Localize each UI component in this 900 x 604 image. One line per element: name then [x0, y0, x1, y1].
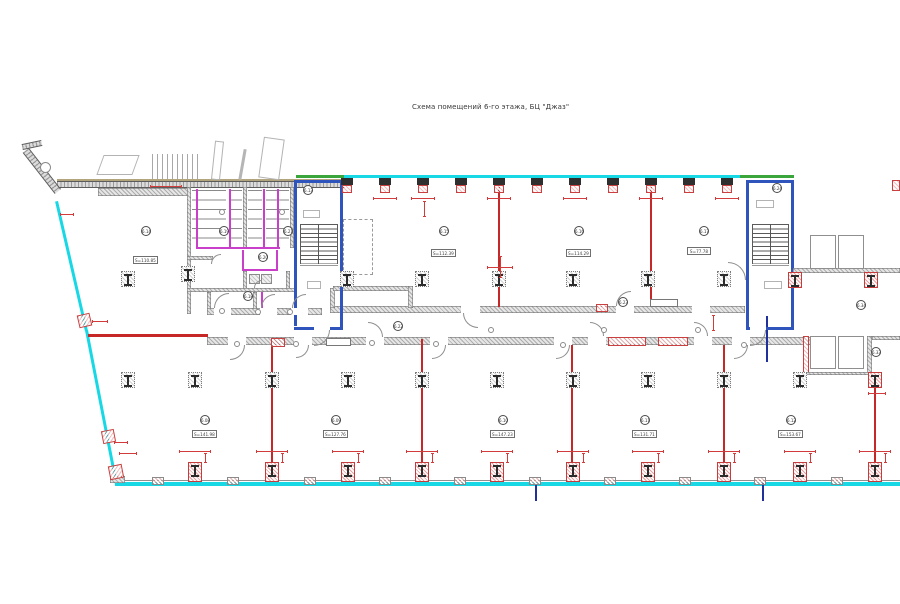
facade-column	[607, 178, 619, 185]
facade-column	[341, 178, 353, 185]
toilet-stalls	[231, 190, 242, 247]
facade-column-hatch	[380, 185, 390, 193]
sanitary-wall	[187, 288, 297, 292]
corridor-jog-wall	[408, 286, 413, 308]
door-tag-circle	[601, 327, 607, 333]
door-tag-circle	[741, 342, 747, 348]
wing-inner-wall	[98, 188, 190, 196]
dimension-mark	[411, 197, 435, 200]
elevator-shaft	[810, 235, 836, 269]
steel-column	[566, 271, 580, 287]
corridor-wall-new-left	[88, 334, 208, 337]
wall-niche-box	[307, 281, 321, 289]
facade-column-hatch	[456, 185, 466, 193]
section-marker	[762, 483, 764, 501]
door-tag-circle	[488, 327, 494, 333]
stairwell1-wall	[294, 180, 343, 183]
room-number-circle: 6.33	[871, 347, 881, 357]
facade-column	[645, 178, 657, 185]
steel-column-new	[868, 372, 882, 388]
room-number-circle: 6.17	[699, 226, 709, 236]
section-line	[766, 316, 768, 362]
facade-column	[265, 462, 279, 482]
room-number-circle: 6.12	[786, 415, 796, 425]
dimension-mark	[506, 453, 509, 463]
facade-column	[493, 178, 505, 185]
facade-column	[379, 178, 391, 185]
facade-column-mark	[77, 313, 93, 329]
window-band-right	[740, 175, 794, 178]
room-area-box: S=114.29	[566, 249, 591, 257]
facade-column	[717, 462, 731, 482]
new-opening-infill	[658, 337, 688, 346]
door-swing-arc	[432, 345, 446, 359]
section-marker	[535, 483, 537, 501]
sanitary-wall	[243, 187, 247, 248]
room-area-box: S=110.85	[133, 256, 158, 264]
dimension-mark	[884, 453, 887, 463]
plumbing-partition	[276, 250, 278, 270]
dimension-mark	[92, 320, 108, 323]
facade-column-hatch	[494, 185, 504, 193]
plumbing-partition	[242, 269, 278, 271]
door-opening	[692, 306, 710, 313]
steel-column	[641, 372, 655, 388]
dimension-mark	[868, 392, 886, 395]
door-swing-arc	[214, 293, 229, 308]
new-partition	[421, 339, 423, 482]
dimension-mark	[114, 441, 128, 444]
new-partition	[650, 187, 652, 307]
dimension-mark	[657, 453, 660, 463]
room-number-circle: 6.19	[219, 226, 229, 236]
facade-column-hatch	[342, 185, 352, 193]
grid-tick	[679, 477, 691, 485]
facade-column	[490, 462, 504, 482]
dimension-mark	[563, 197, 587, 200]
door-tag-circle	[695, 327, 701, 333]
door-tag-circle	[219, 308, 225, 314]
stair-stringer	[318, 224, 319, 264]
dimension-mark	[712, 315, 715, 331]
wall-fragment	[258, 137, 285, 181]
room-area-box: S=127.76	[323, 430, 348, 438]
sanitary-wall	[207, 292, 211, 309]
dimension-mark	[487, 197, 511, 200]
facade-column-mark	[108, 464, 124, 480]
room-number-circle: 6.08	[200, 415, 210, 425]
steel-column	[490, 372, 504, 388]
facade-column	[566, 462, 580, 482]
grid-tick	[379, 477, 391, 485]
stair-landing-box	[756, 200, 774, 208]
corridor-jog-wall	[330, 288, 335, 308]
stair-landing-box	[303, 210, 320, 218]
steel-column	[188, 372, 202, 388]
axis-marker-circle	[40, 162, 51, 173]
facade-column-hatch	[418, 185, 428, 193]
elevator-bottom-wall	[806, 372, 870, 375]
room-number-circle: 6.20	[258, 252, 268, 262]
room-area-box: S=112.39	[431, 249, 456, 257]
door-tag-circle	[255, 309, 261, 315]
room-area-box: S=147.23	[490, 430, 515, 438]
corridor-niche	[650, 299, 678, 307]
door-opening	[694, 337, 712, 345]
grid-tick	[227, 477, 239, 485]
door-tag-circle	[219, 209, 225, 215]
door-tag-circle	[234, 341, 240, 347]
window-band-left	[296, 175, 344, 178]
sanitary-wall	[253, 292, 257, 309]
grid-tick	[454, 477, 466, 485]
plumbing-partition	[196, 189, 198, 249]
facade-column-mark	[892, 180, 900, 191]
room-number-circle: 6.15	[439, 226, 449, 236]
steel-column	[340, 271, 354, 287]
wing-corner-cap	[22, 140, 43, 150]
demolished-wall-fragment	[96, 155, 139, 175]
steel-column	[341, 372, 355, 388]
sanitary-wall	[243, 271, 247, 289]
facade-column	[531, 178, 543, 185]
facade-column	[417, 178, 429, 185]
steel-column	[415, 372, 429, 388]
west-diagonal-wall-upper	[55, 201, 88, 331]
sanitary-wall	[286, 271, 290, 289]
plumbing-partition	[229, 189, 231, 249]
facade-column	[341, 462, 355, 482]
room-number-circle: 6.10	[498, 415, 508, 425]
stair-stringer	[770, 224, 771, 264]
grid-tick	[529, 477, 541, 485]
steel-column	[793, 372, 807, 388]
steel-column	[265, 372, 279, 388]
corridor-number-circle: 6.23	[618, 297, 628, 307]
facade-column-hatch	[532, 185, 542, 193]
dimension-mark	[715, 197, 739, 200]
dimension-mark	[60, 213, 74, 216]
door-tag-circle	[293, 341, 299, 347]
stairwell-number-circle: 6.13	[303, 185, 313, 195]
door-swing-arc	[368, 322, 383, 337]
elevator-side-wall	[803, 336, 809, 373]
room-area-box: S=153.67	[778, 430, 803, 438]
door-tag-circle	[560, 342, 566, 348]
plumbing-partition	[242, 250, 244, 270]
door-opening	[260, 308, 277, 315]
page-title: Схема помещений 6-го этажа, БЦ "Джаз"	[412, 103, 569, 111]
dimension-mark	[357, 453, 360, 463]
new-partition	[498, 187, 500, 307]
facade-column	[641, 462, 655, 482]
corridor-number-circle: 6.22	[393, 321, 403, 331]
plumbing-partition	[263, 189, 265, 249]
facade-column	[721, 178, 733, 185]
door-tag-circle	[279, 209, 285, 215]
sanitary-wall	[187, 187, 191, 314]
plumbing-partition	[277, 189, 279, 249]
toilet-stalls	[248, 190, 262, 247]
plumbing-partition	[196, 247, 280, 249]
stairwell2-wall	[746, 180, 749, 330]
facade-column	[455, 178, 467, 185]
facade-column	[868, 462, 882, 482]
west-diagonal-wall-lower	[85, 330, 118, 485]
stairwell1-stairs	[300, 224, 338, 264]
corridor-wall-right-end	[872, 336, 900, 340]
door-tag-circle	[287, 309, 293, 315]
corridor-north-wall-right	[330, 306, 745, 313]
door-tag-circle	[433, 341, 439, 347]
facade-column-hatch	[570, 185, 580, 193]
sink-fixture	[261, 274, 272, 284]
new-fixture-box	[271, 338, 285, 347]
steel-column	[121, 372, 135, 388]
facade-column-hatch	[722, 185, 732, 193]
steel-column-new	[788, 272, 802, 288]
room-number-circle: 6.18	[243, 291, 253, 301]
sanitary-wall	[187, 256, 213, 260]
steel-column-new	[864, 272, 878, 288]
room-area-box: S=141.98	[192, 430, 217, 438]
room-number-circle: 6.34	[856, 300, 866, 310]
room-number-circle: 6.09	[331, 415, 341, 425]
steel-column	[566, 372, 580, 388]
dimension-mark	[150, 185, 182, 188]
door-swing-arc	[463, 313, 478, 328]
stair-landing-line	[300, 265, 338, 266]
steel-column	[641, 271, 655, 287]
grid-tick	[152, 477, 164, 485]
dimension-mark	[281, 453, 284, 463]
stair-landing-line	[752, 265, 789, 266]
grid-tick	[304, 477, 316, 485]
corridor-niche	[326, 338, 351, 346]
grid-tick	[754, 477, 766, 485]
door-opening	[461, 306, 480, 313]
door-swing-arc	[296, 345, 309, 358]
floor-plan-canvas: Схема помещений 6-го этажа, БЦ "Джаз"	[0, 0, 900, 604]
elevator-shaft	[838, 235, 864, 269]
door-opening	[291, 308, 308, 315]
grid-tick	[831, 477, 843, 485]
wall-fragment	[211, 141, 224, 181]
dimension-mark	[582, 453, 585, 463]
room-area-box: S=77.78	[687, 247, 711, 255]
hatched-wall-fragment	[152, 154, 198, 179]
door-swing-arc	[230, 345, 245, 360]
dimension-mark	[119, 452, 137, 455]
steel-column	[181, 266, 195, 282]
dimension-mark	[499, 256, 502, 278]
door-tag-circle	[369, 340, 375, 346]
dimension-mark	[809, 453, 812, 463]
facade-column	[569, 178, 581, 185]
room-number-circle: 6.16	[574, 226, 584, 236]
dimension-mark	[373, 197, 397, 200]
facade-column-hatch	[646, 185, 656, 193]
stairwell2-wall	[746, 180, 794, 183]
steel-column	[717, 372, 731, 388]
facade-column-hatch	[684, 185, 694, 193]
steel-column	[121, 271, 135, 287]
door-swing-arc	[728, 262, 746, 280]
facade-column	[415, 462, 429, 482]
facade-column	[793, 462, 807, 482]
room-area-box: S=131.71	[632, 430, 657, 438]
door-opening	[588, 337, 606, 345]
door-opening	[616, 306, 634, 313]
grid-tick	[604, 477, 616, 485]
facade-column	[188, 462, 202, 482]
door-swing-arc	[261, 294, 275, 308]
dimension-mark	[431, 453, 434, 463]
stairwell2-wall	[791, 180, 794, 330]
demolished-outline	[343, 219, 373, 275]
new-fixture-box	[596, 304, 608, 312]
facade-column-hatch	[608, 185, 618, 193]
dimension-mark	[423, 201, 426, 217]
dimension-mark	[733, 453, 736, 463]
new-opening-infill	[608, 337, 646, 346]
stair-landing-box	[764, 281, 782, 289]
room-number-circle: 6.11	[640, 415, 650, 425]
steel-column	[415, 271, 429, 287]
dimension-mark	[204, 453, 207, 463]
stairwell-number-circle: 6.24	[772, 183, 782, 193]
dimension-mark	[639, 197, 663, 200]
room-number-circle: 6.21	[283, 226, 293, 236]
wall-fragment	[238, 149, 246, 180]
elevator-shaft	[810, 336, 836, 369]
elevator-shaft	[838, 336, 864, 369]
room-number-circle: 6.14	[141, 226, 151, 236]
facade-column	[683, 178, 695, 185]
